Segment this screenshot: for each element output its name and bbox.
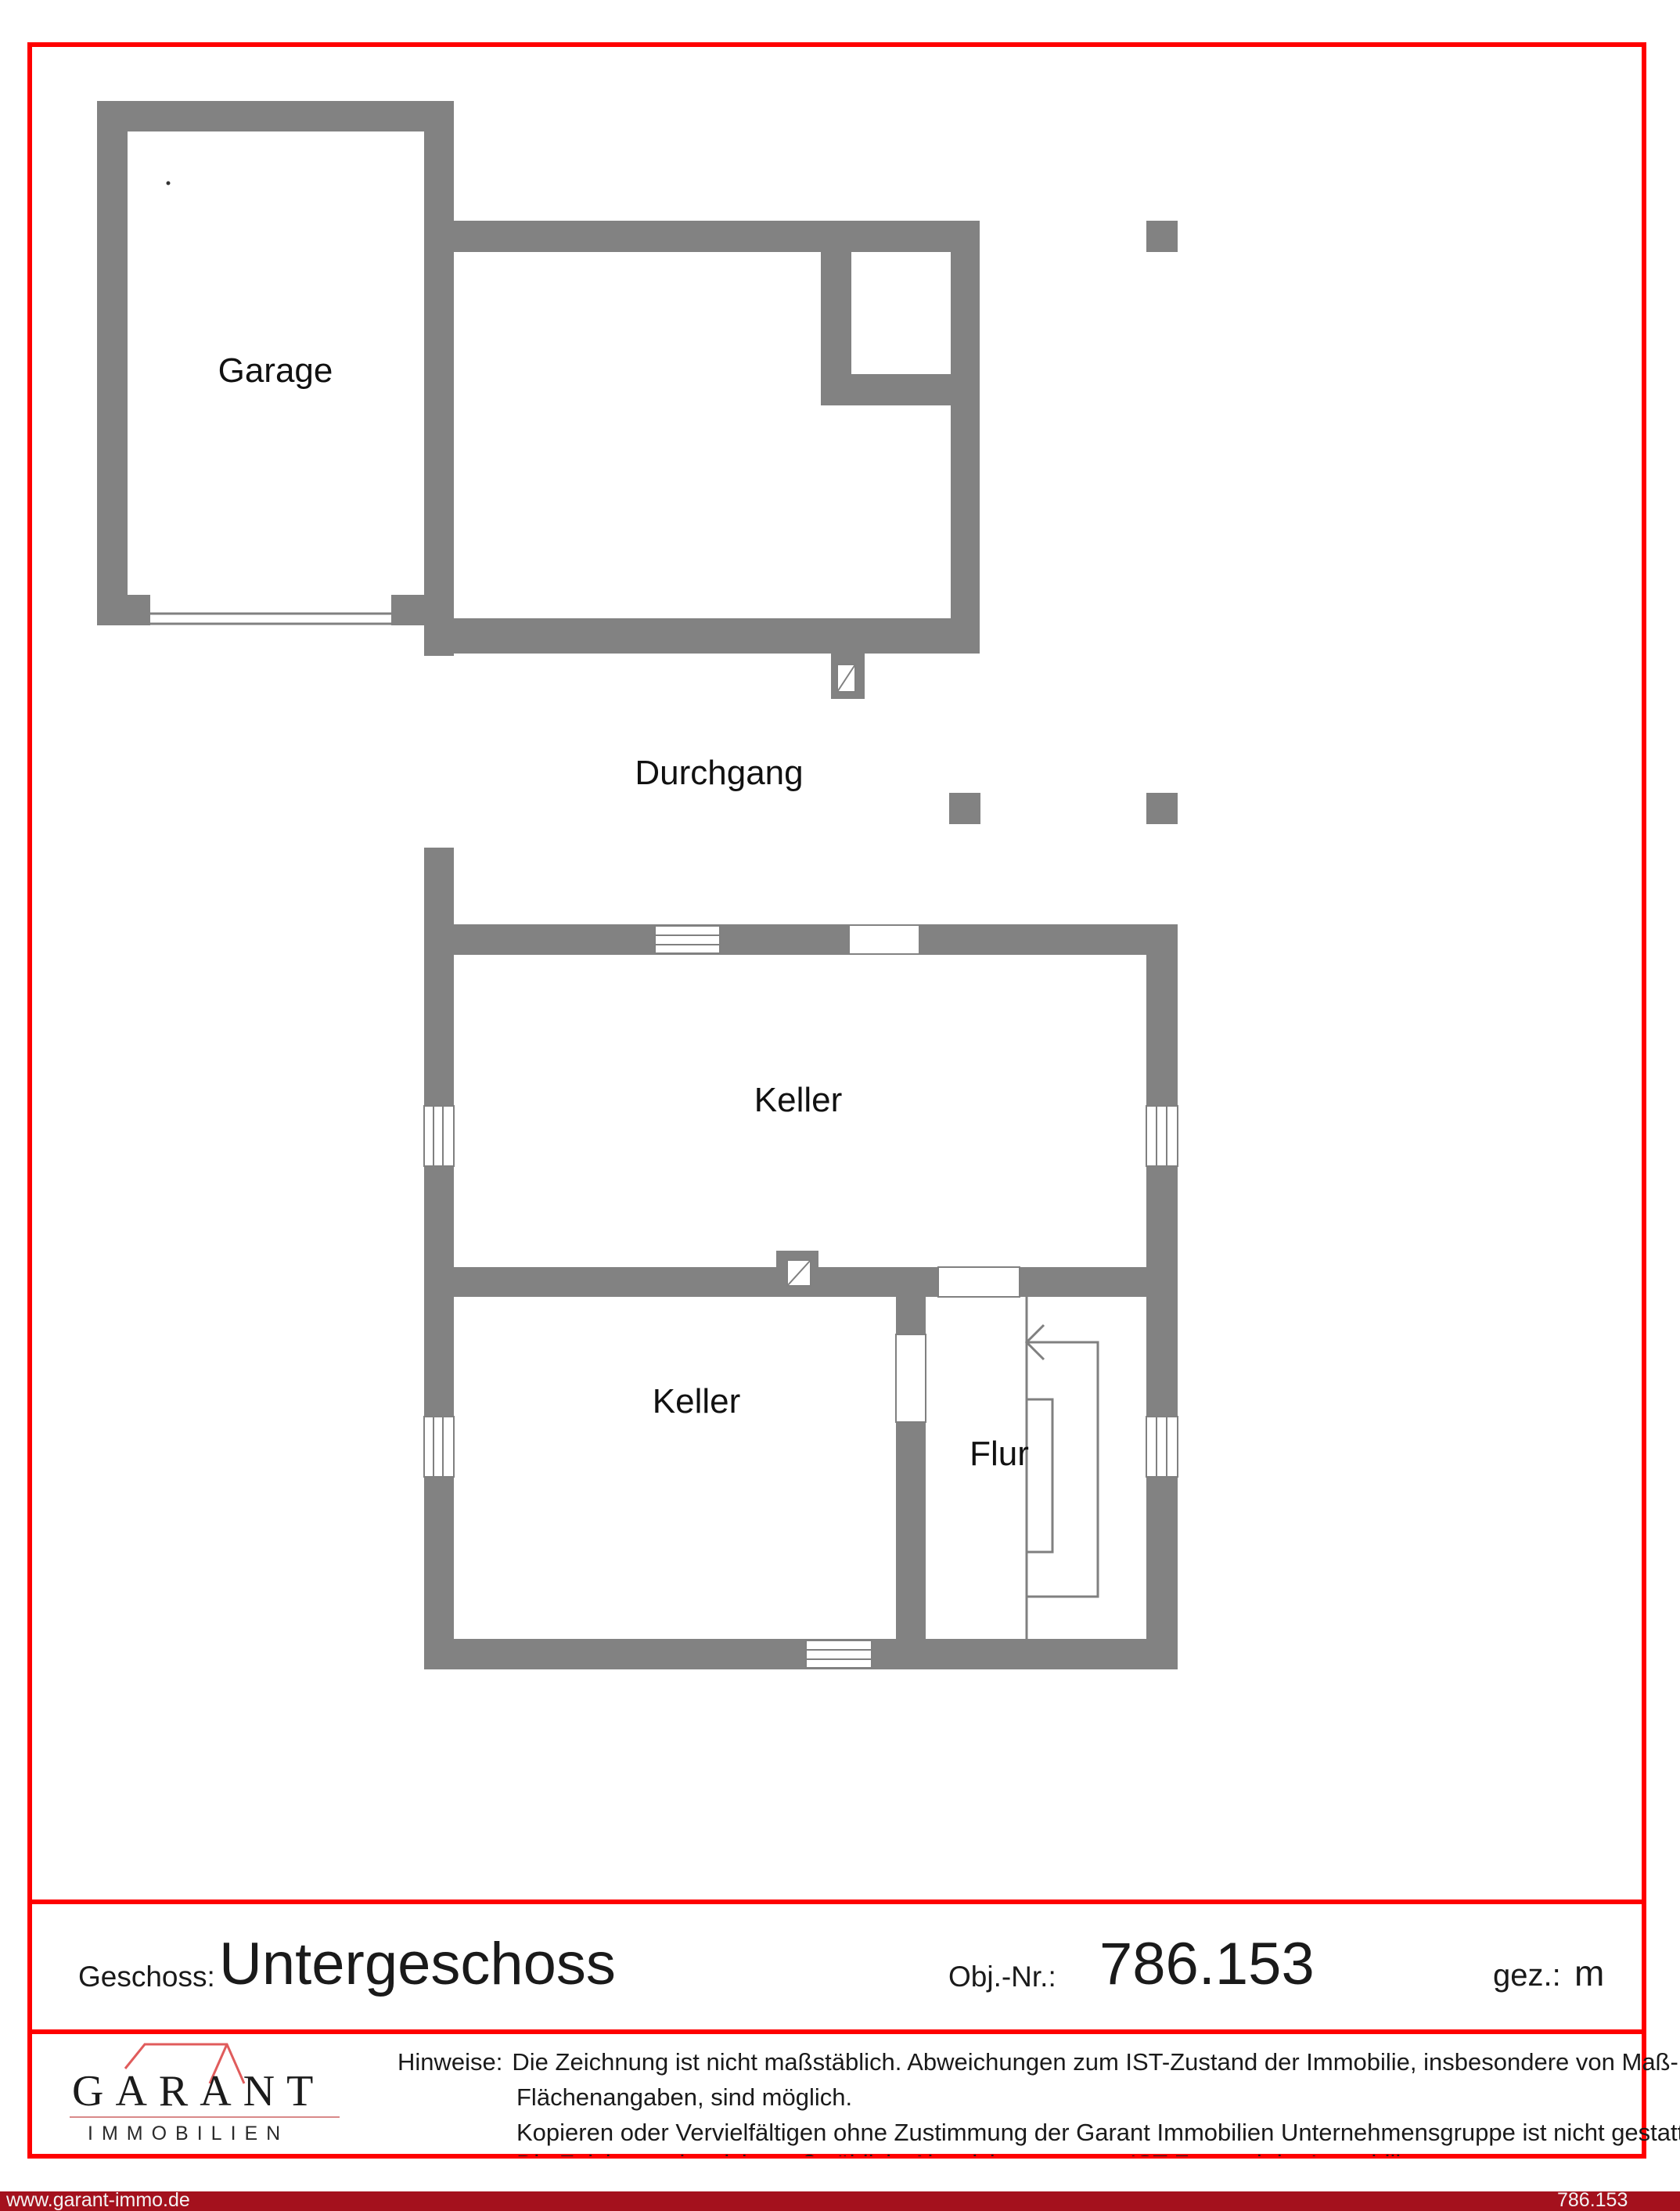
top-wall-opening [850,926,919,953]
geschoss-value: Untergeschoss [219,1935,616,1994]
gez-value: m [1574,1952,1604,1994]
bottom-bar-object-number: 786.153 [1557,2189,1628,2211]
geschoss-label: Geschoss: [78,1961,215,1993]
hinweise-line3: Kopieren oder Vervielfältigen ohne Zusti… [516,2115,1680,2150]
obj-nr-value: 786.153 [1099,1935,1315,1994]
floor-plan-canvas: Garage Durchgang Keller Keller Flur [0,0,1680,2211]
wall-pillars [949,221,1178,824]
chimney-symbol-lower [776,1251,818,1287]
logo-rule [70,2116,340,2118]
garage-door [150,614,391,624]
gez-label: gez.: [1493,1958,1561,1993]
room-label-flur: Flur [970,1435,1029,1473]
bottom-bar-url: www.garant-immo.de [6,2189,190,2211]
hinweise-label: Hinweise: [398,2048,502,2076]
flur-door-opening [896,1334,926,1422]
room-label-garage: Garage [218,351,333,390]
logo-subtitle: IMMOBILIEN [88,2123,289,2145]
chimney-symbol-upper [831,654,865,699]
bottom-bar: www.garant-immo.de 786.153 [0,2191,1680,2211]
hinweise-line2: Flächenangaben, sind möglich. [516,2080,852,2115]
room-label-keller-upper: Keller [754,1081,843,1119]
floorplan-sheet: Garage Durchgang Keller Keller Flur Gesc… [0,0,1680,2211]
passage-room-walls [424,221,980,654]
garant-logo: GARANT IMMOBILIEN [69,2035,351,2148]
room-label-durchgang: Durchgang [635,754,803,792]
plan-speck [167,182,171,185]
obj-nr-label: Obj.-Nr.: [948,1961,1056,1993]
room-label-keller-lower: Keller [653,1382,741,1421]
hinweise-line1: Hinweise:Die Zeichnung ist nicht maßstäb… [398,2044,1680,2080]
middle-wall-opening [938,1267,1020,1297]
logo-name: GARANT [72,2066,325,2116]
staircase [1027,1297,1098,1639]
hinweise-clipped-line: Die Zeichnung ist nicht maßstäblich. Abw… [516,2146,1415,2156]
